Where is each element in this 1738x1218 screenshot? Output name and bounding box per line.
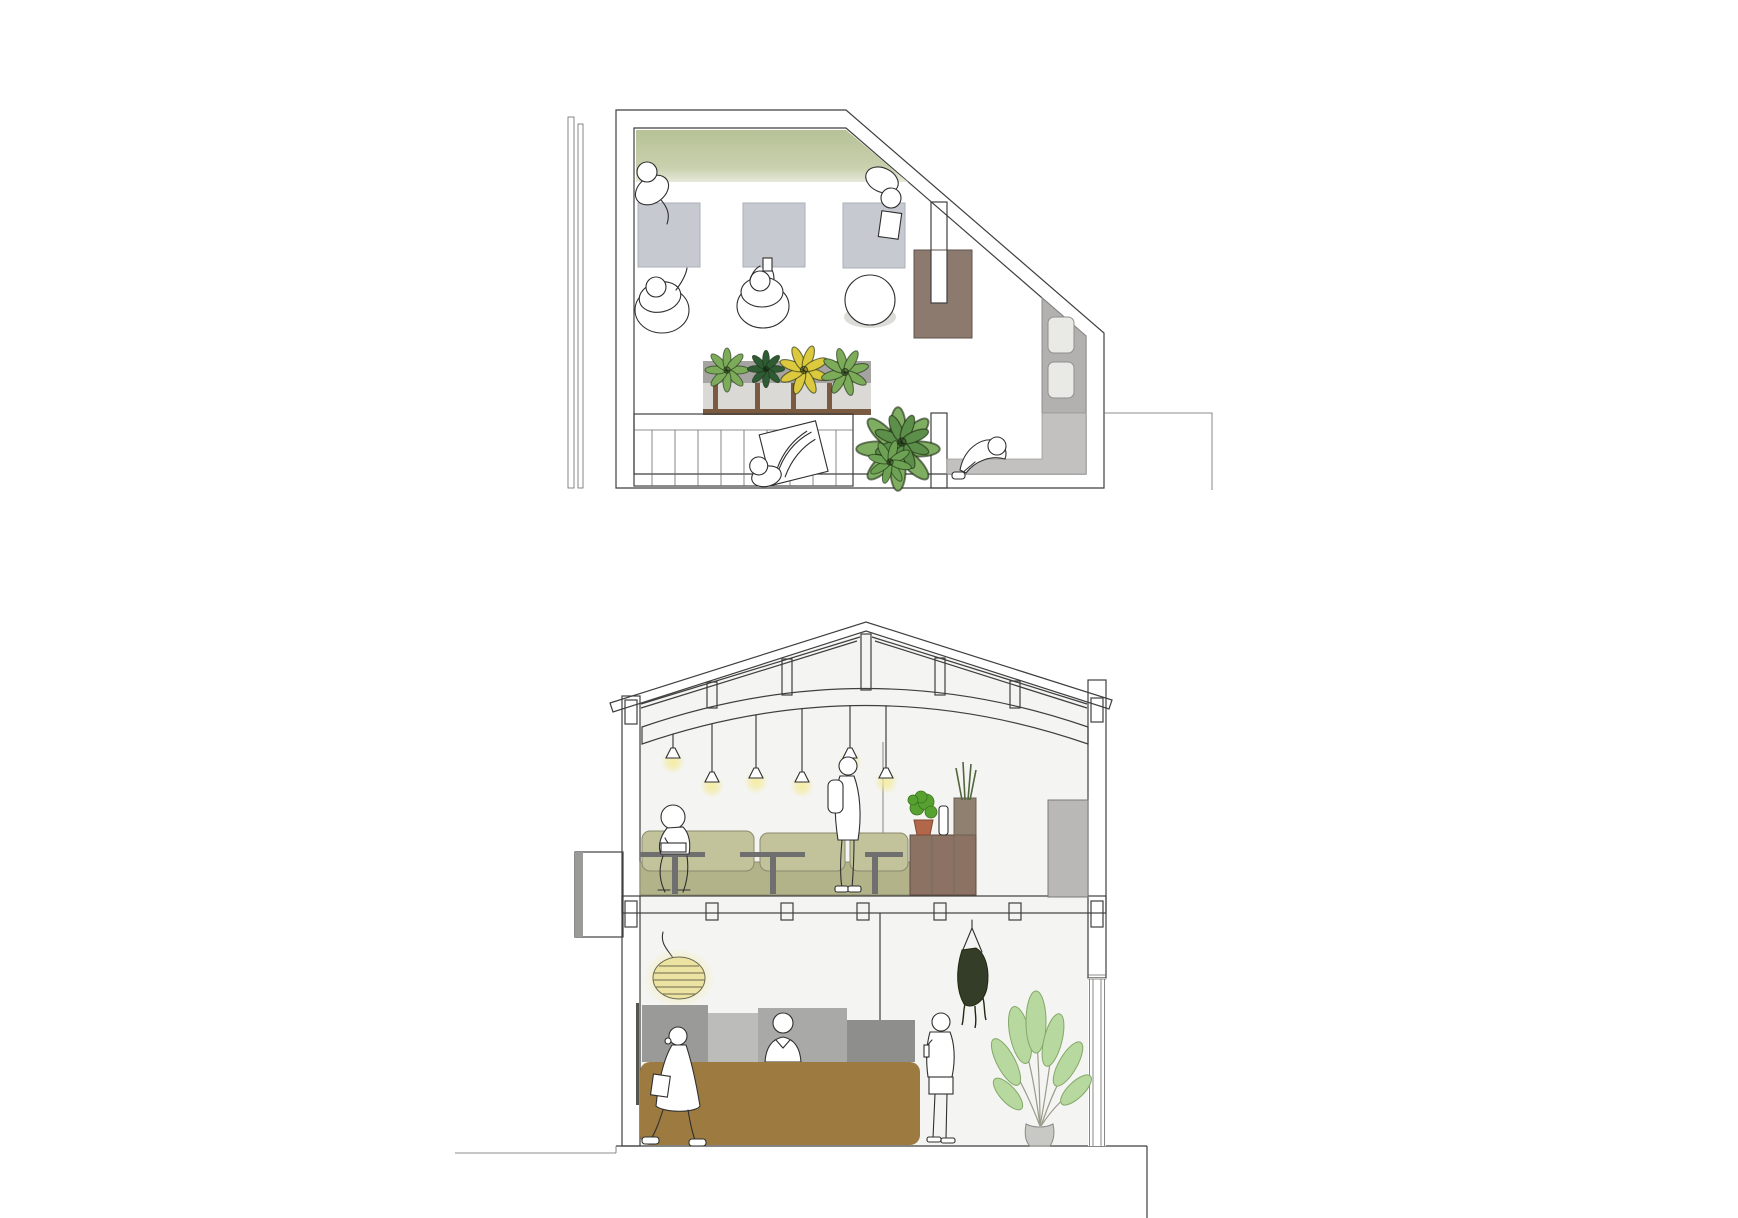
u-shaped-sofa — [914, 250, 972, 338]
planter-plant-dark-green — [747, 350, 784, 387]
square-table-1 — [638, 203, 700, 267]
right-wall-beam-top — [1091, 698, 1103, 722]
architectural-sheet-svg — [0, 0, 1738, 1218]
plant-pot — [1025, 1124, 1054, 1146]
handbag — [651, 1074, 671, 1097]
right-wall-window — [1088, 975, 1106, 1146]
square-table-2 — [743, 203, 805, 267]
back-bar-block-4 — [847, 1020, 915, 1062]
spiky-planter — [954, 798, 976, 835]
exterior-wall-box-edge — [575, 852, 583, 937]
neighbour-outline-right — [1104, 413, 1212, 490]
planter-post — [827, 383, 832, 409]
round-table — [845, 275, 895, 325]
wall-fixture-upper — [1048, 317, 1074, 353]
cabinet-pot — [914, 820, 933, 835]
right-wall-beam-mid — [1091, 901, 1103, 927]
planter-post — [713, 383, 718, 409]
left-wall-glass — [636, 1003, 639, 1105]
planter-plant-green — [705, 348, 749, 392]
laptop — [661, 843, 686, 852]
person-seated-table-1 — [635, 268, 689, 333]
drink — [924, 1045, 929, 1057]
floor-plant-monstera — [856, 405, 940, 492]
floor-plan — [568, 110, 1212, 492]
person-carrying-tray-on-stairs — [742, 421, 828, 490]
section-drawing — [455, 622, 1147, 1218]
drawing-sheet — [0, 0, 1738, 1218]
planter-post — [755, 383, 760, 409]
vase — [939, 806, 948, 835]
gray-storage-box — [1048, 800, 1088, 897]
neighbour-wall-left — [568, 117, 583, 488]
ground-lines — [455, 1146, 1147, 1218]
person-seated-table-2 — [737, 258, 789, 328]
backpack — [828, 780, 843, 813]
back-bar-block-2 — [708, 1013, 758, 1062]
planter-bar — [703, 338, 875, 415]
wall-fixture-lower — [1048, 362, 1074, 398]
right-wall-upper — [1088, 680, 1106, 978]
left-wall-beam-top — [625, 700, 637, 724]
left-wall-beam-mid — [625, 901, 637, 927]
wall-fin-upper — [931, 202, 947, 303]
